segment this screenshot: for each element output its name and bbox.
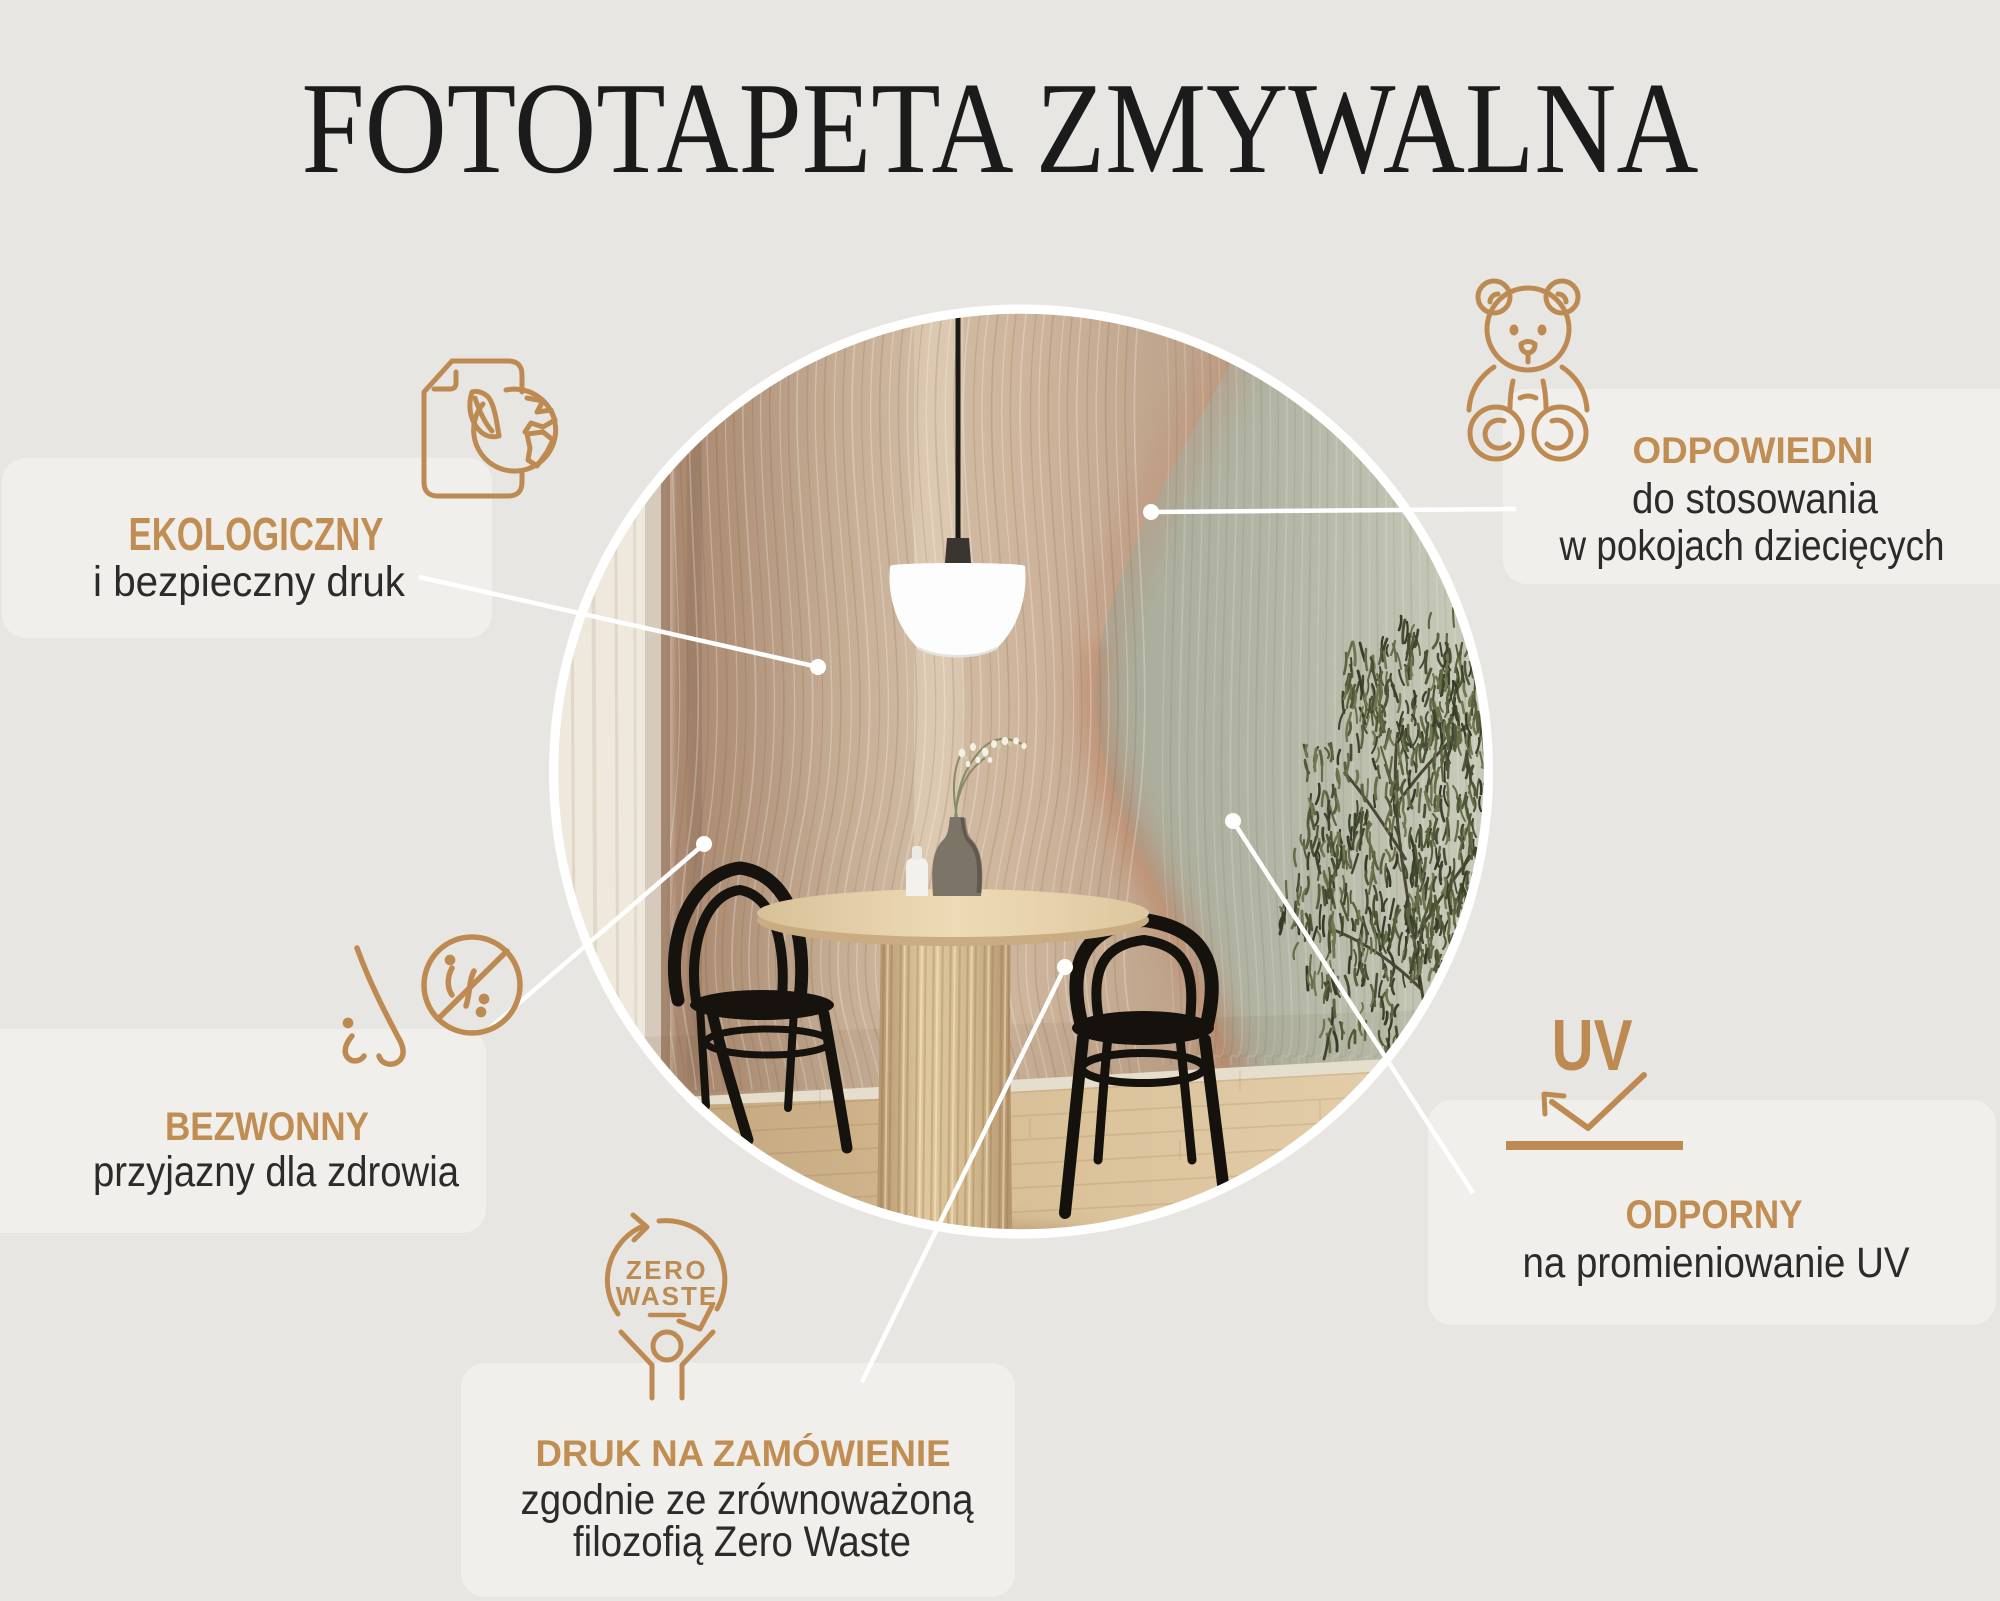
svg-text:DRUK NA ZAMÓWIENIE: DRUK NA ZAMÓWIENIE <box>536 1432 951 1474</box>
svg-text:ODPORNY: ODPORNY <box>1626 1193 1803 1237</box>
svg-text:do stosowania: do stosowania <box>1632 475 1878 523</box>
svg-text:filozofią Zero Waste: filozofią Zero Waste <box>573 1518 911 1566</box>
svg-text:EKOLOGICZNY: EKOLOGICZNY <box>129 508 384 560</box>
svg-text:ODPOWIEDNI: ODPOWIEDNI <box>1633 430 1874 471</box>
svg-text:w pokojach dziecięcych: w pokojach dziecięcych <box>1559 522 1945 570</box>
svg-text:WASTE: WASTE <box>616 1281 718 1311</box>
svg-text:i bezpieczny druk: i bezpieczny druk <box>93 558 405 606</box>
svg-text:na promieniowanie UV: na promieniowanie UV <box>1523 1239 1910 1287</box>
svg-text:FOTOTAPETA ZMYWALNA: FOTOTAPETA ZMYWALNA <box>302 56 1699 201</box>
svg-text:przyjazny dla zdrowia: przyjazny dla zdrowia <box>93 1148 459 1196</box>
svg-text:UV: UV <box>1552 1006 1633 1086</box>
svg-text:zgodnie ze zrównoważoną: zgodnie ze zrównoważoną <box>521 1476 974 1524</box>
svg-text:BEZWONNY: BEZWONNY <box>165 1105 369 1149</box>
